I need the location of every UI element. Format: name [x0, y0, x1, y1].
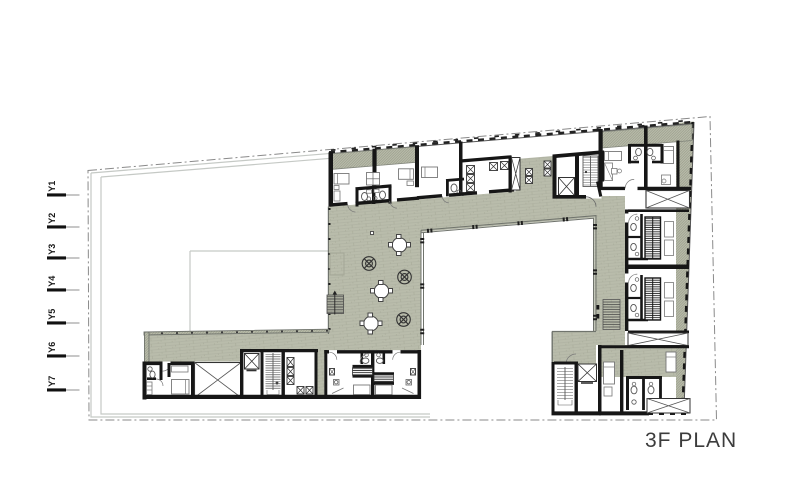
svg-text:Y1: Y1: [47, 181, 57, 192]
svg-text:Y6: Y6: [47, 342, 57, 353]
svg-text:Y2: Y2: [47, 213, 57, 224]
svg-text:Y7: Y7: [47, 376, 57, 387]
svg-text:Y5: Y5: [47, 309, 57, 320]
svg-text:Y3: Y3: [47, 244, 57, 255]
svg-text:3F PLAN: 3F PLAN: [645, 429, 737, 452]
svg-text:Y4: Y4: [47, 276, 57, 287]
